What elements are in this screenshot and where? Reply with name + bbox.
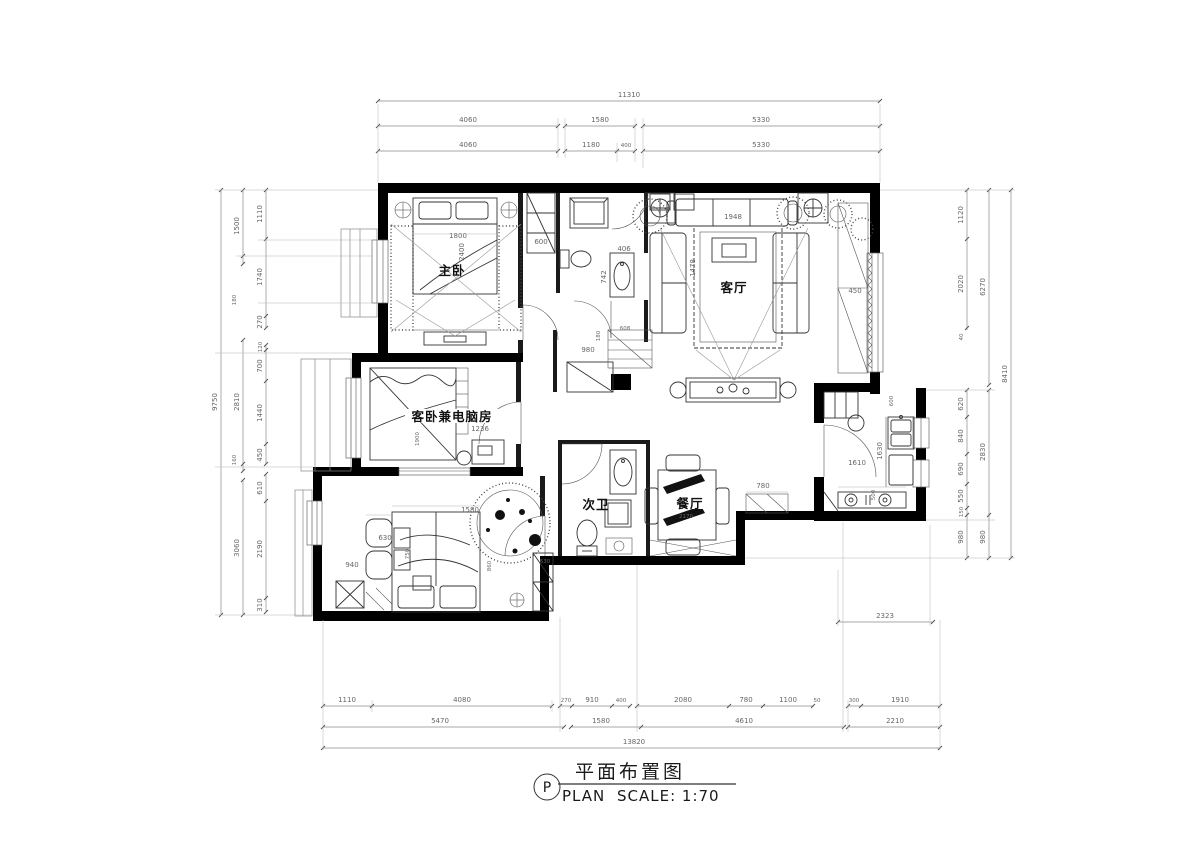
dim-text: 550 bbox=[957, 489, 965, 502]
dim-text: 1236 bbox=[471, 425, 489, 433]
guest-radiator bbox=[456, 368, 468, 434]
dim-text: 4060 bbox=[459, 141, 477, 149]
window-living-right bbox=[867, 253, 883, 372]
bedroom3-chairs bbox=[366, 519, 431, 590]
dim-text: 630 bbox=[540, 559, 551, 565]
dim-text: 630 bbox=[378, 534, 391, 542]
kitchen-sink-icon bbox=[888, 416, 914, 450]
dim-text: 608 bbox=[620, 326, 631, 332]
dim-text: 2810 bbox=[233, 393, 241, 411]
dim-text: 5330 bbox=[752, 141, 770, 149]
windows bbox=[307, 240, 929, 545]
dim-text: 11310 bbox=[618, 91, 640, 99]
dim-text: 180 bbox=[232, 294, 238, 305]
bath2-washer bbox=[606, 538, 632, 554]
dim-text: 500 bbox=[871, 489, 877, 500]
dim-text: 600 bbox=[534, 238, 547, 246]
dim-text: 1800 bbox=[449, 232, 467, 240]
dim-text: 980 bbox=[979, 530, 987, 543]
master-tv-stand bbox=[396, 300, 515, 345]
dim-text: 5470 bbox=[431, 717, 449, 725]
dim-text: 860 bbox=[487, 560, 493, 571]
drawing-scale: SCALE: 1:70 bbox=[617, 787, 720, 805]
bedroom3 bbox=[336, 483, 553, 612]
room-label-guest-bedroom: 客卧兼电脑房 bbox=[410, 409, 492, 424]
bedroom3-bench-hatch bbox=[366, 588, 392, 610]
dim-text: 2830 bbox=[979, 443, 987, 461]
master-bedroom: 主卧 bbox=[391, 198, 521, 345]
hall-shoe-cabinet bbox=[567, 362, 613, 392]
round-rug bbox=[470, 483, 550, 563]
plan-symbol-letter: P bbox=[543, 780, 551, 796]
window-guest-top bbox=[399, 468, 470, 475]
dim-text: 1440 bbox=[256, 404, 264, 422]
bay-windows bbox=[295, 229, 377, 616]
dim-text: 742 bbox=[600, 270, 608, 283]
title-block: P 平面布置图 PLAN SCALE: 1:70 bbox=[534, 761, 736, 805]
dim-text: 450 bbox=[848, 287, 861, 295]
room-label-living-room: 客厅 bbox=[719, 280, 747, 295]
bath2-toilet-icon bbox=[577, 520, 597, 556]
dim-text: 3060 bbox=[233, 539, 241, 557]
dim-text: 1900 bbox=[415, 432, 421, 446]
dim-text: 1910 bbox=[891, 696, 909, 704]
dimensions-top: 11310 4060 1580 5330 4060 1180 400 5330 bbox=[376, 91, 882, 183]
room-label-dining-room: 餐厅 bbox=[675, 496, 703, 511]
dim-text: 2190 bbox=[256, 540, 264, 558]
dim-text: 13820 bbox=[623, 738, 645, 746]
dim-text: 2080 bbox=[674, 696, 692, 704]
drawing-type: PLAN bbox=[562, 787, 605, 805]
dim-text: 690 bbox=[957, 462, 965, 475]
living-room: 客厅 bbox=[633, 193, 873, 402]
master-bed bbox=[413, 198, 497, 294]
dining-room: 餐厅 bbox=[645, 455, 788, 556]
dim-text: 1110 bbox=[256, 205, 264, 223]
dim-text: 1478 bbox=[689, 259, 697, 277]
dim-text: 9750 bbox=[211, 393, 219, 411]
dim-text: 780 bbox=[739, 696, 752, 704]
dim-text: 40 bbox=[959, 333, 965, 340]
computer-desk bbox=[457, 440, 504, 465]
dim-text: 120 bbox=[258, 341, 264, 352]
sofa-right bbox=[773, 233, 809, 333]
dim-text: 700 bbox=[256, 359, 264, 372]
sofa-left bbox=[650, 233, 686, 333]
dim-text: 6270 bbox=[979, 278, 987, 296]
kitchen-fridge bbox=[889, 455, 913, 485]
dim-text: 1740 bbox=[256, 268, 264, 286]
dim-text: 940 bbox=[345, 561, 358, 569]
dim-text: 2210 bbox=[886, 717, 904, 725]
dim-text: 270 bbox=[561, 698, 572, 704]
bedroom3-bed bbox=[392, 512, 480, 612]
dim-text: 4610 bbox=[735, 717, 753, 725]
dim-text: 310 bbox=[256, 598, 264, 611]
bath-sink-icon bbox=[610, 253, 634, 297]
tv-cabinet bbox=[660, 228, 808, 402]
dim-text: 750 bbox=[405, 548, 411, 559]
dim-text: 2170 bbox=[679, 514, 693, 520]
dim-text: 980 bbox=[581, 346, 594, 354]
dim-text: 1580 bbox=[461, 506, 479, 514]
master-carpet bbox=[391, 224, 521, 332]
dim-text: 450 bbox=[256, 448, 264, 461]
room-label-master-bedroom: 主卧 bbox=[438, 263, 465, 278]
dim-text: 1110 bbox=[338, 696, 356, 704]
dim-text: 980 bbox=[957, 530, 965, 543]
dim-text: 400 bbox=[616, 698, 627, 704]
dim-text: 1100 bbox=[779, 696, 797, 704]
dim-text: 1580 bbox=[591, 116, 609, 124]
plants-icon bbox=[633, 197, 873, 240]
toilet-icon bbox=[560, 250, 591, 268]
dim-text: 1610 bbox=[848, 459, 866, 467]
dim-text: 400 bbox=[621, 143, 632, 149]
dining-cabinet bbox=[650, 494, 788, 556]
drawing-title: 平面布置图 bbox=[575, 761, 685, 783]
dim-text: 1630 bbox=[876, 442, 884, 460]
dim-text: 2020 bbox=[957, 275, 965, 293]
dim-text: 780 bbox=[756, 482, 769, 490]
dim-text: 160 bbox=[232, 454, 238, 465]
dim-text: 1180 bbox=[582, 141, 600, 149]
dim-text: 300 bbox=[849, 698, 860, 704]
dim-text: 4060 bbox=[459, 116, 477, 124]
dim-text: 406 bbox=[617, 245, 631, 253]
window-master-left bbox=[372, 240, 388, 303]
room-label-second-bathroom: 次卫 bbox=[582, 497, 609, 512]
dim-text: 1580 bbox=[592, 717, 610, 725]
dim-text: 2400 bbox=[458, 243, 466, 261]
shower-tray bbox=[570, 198, 608, 228]
dim-text: 180 bbox=[596, 330, 602, 341]
dim-text: 5330 bbox=[752, 116, 770, 124]
window-guest-left bbox=[346, 378, 361, 458]
kitchen-stove-icon bbox=[824, 492, 906, 511]
dim-text: 1500 bbox=[233, 217, 241, 235]
second-bathroom: 次卫 bbox=[577, 450, 636, 556]
floor-plan-sheet: 主卧 bbox=[0, 0, 1200, 848]
dim-text: 840 bbox=[957, 429, 965, 442]
dim-text: 910 bbox=[585, 696, 598, 704]
floor-plan-drawing: 主卧 bbox=[0, 0, 1200, 848]
dim-text: 8410 bbox=[1001, 365, 1009, 383]
dim-text: 2323 bbox=[876, 612, 894, 620]
kitchen bbox=[824, 392, 914, 511]
dim-text: 4080 bbox=[453, 696, 471, 704]
dim-text: 50 bbox=[814, 698, 821, 704]
dim-text: 270 bbox=[256, 315, 264, 328]
coffee-table bbox=[712, 238, 756, 262]
dim-text: 150 bbox=[959, 506, 965, 517]
guest-bedroom: 客卧兼电脑房 bbox=[370, 368, 504, 465]
dim-text: 1120 bbox=[957, 206, 965, 224]
bedroom3-cabinet-x bbox=[336, 581, 364, 608]
dim-text: 600 bbox=[889, 395, 895, 406]
dim-text: 620 bbox=[957, 397, 965, 410]
bath2-sink-icon bbox=[610, 450, 636, 494]
dim-text: 610 bbox=[256, 481, 264, 494]
dim-text: 1948 bbox=[724, 213, 742, 221]
window-bedroom3-left bbox=[307, 501, 322, 545]
